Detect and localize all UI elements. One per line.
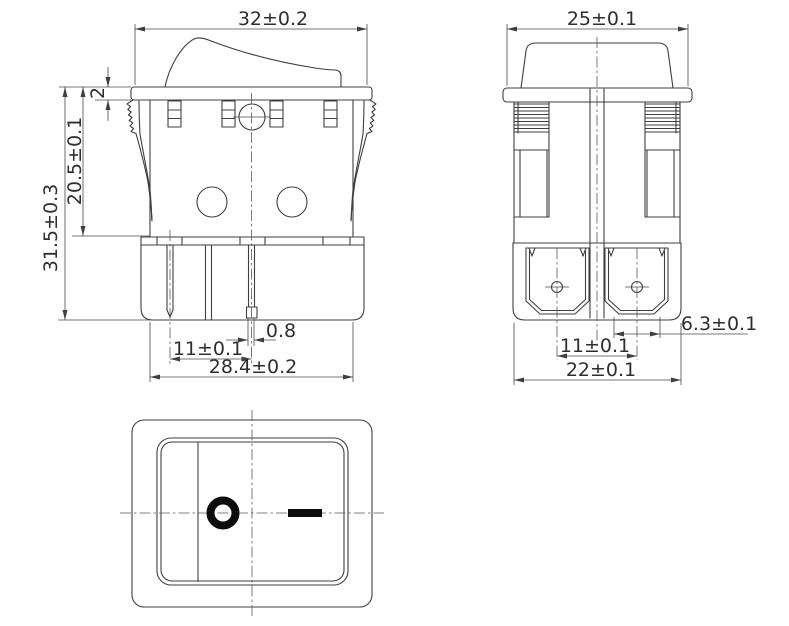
dim-side-body-width-label: 22±0.1: [566, 359, 636, 381]
terminal-bases: [157, 237, 350, 245]
housing-divider-wall: [206, 245, 212, 320]
right-snap-wing: [351, 100, 376, 221]
dim-side-terminal-pitch: 11±0.1: [557, 335, 637, 359]
rocker-switch-drawing: 32±0.2 2 20.5±0.1 31.5±0.3: [0, 0, 789, 626]
dim-total-height-label: 31.5±0.3: [40, 184, 62, 272]
latch-tabs: [168, 101, 337, 127]
on-symbol: [288, 509, 322, 517]
dim-flange-thickness: 2: [59, 67, 131, 121]
left-rivet: [197, 187, 227, 217]
dim-terminal-width: 6.3±0.1: [614, 313, 757, 338]
dim-terminal-width-label: 6.3±0.1: [681, 313, 757, 335]
dim-body-height-label: 20.5±0.1: [64, 117, 86, 205]
front-view: [127, 38, 376, 364]
right-terminal-cavity: [605, 248, 668, 314]
dim-terminal-thickness-label: 0.8: [266, 320, 296, 342]
dim-total-height: 31.5±0.3: [40, 87, 150, 320]
dim-front-body-width-label: 28.4±0.2: [209, 356, 297, 378]
left-terminal-cavity: [526, 248, 589, 314]
left-snap-wing: [127, 100, 152, 221]
right-serrated-clip: [645, 102, 680, 217]
technical-drawing-page: 32±0.2 2 20.5±0.1 31.5±0.3: [0, 0, 789, 626]
side-view: [503, 37, 692, 360]
top-view: [120, 410, 384, 618]
rocker-actuator-profile: [165, 38, 341, 87]
dim-side-width-top-label: 25±0.1: [567, 8, 637, 30]
dim-flange-thickness-label: 2: [87, 87, 109, 99]
dim-side-terminal-pitch-label: 11±0.1: [560, 335, 630, 357]
left-serrated-clip: [514, 102, 549, 217]
right-rivet: [277, 187, 307, 217]
dim-front-width-top-label: 32±0.2: [238, 8, 308, 30]
side-flange: [503, 88, 692, 102]
